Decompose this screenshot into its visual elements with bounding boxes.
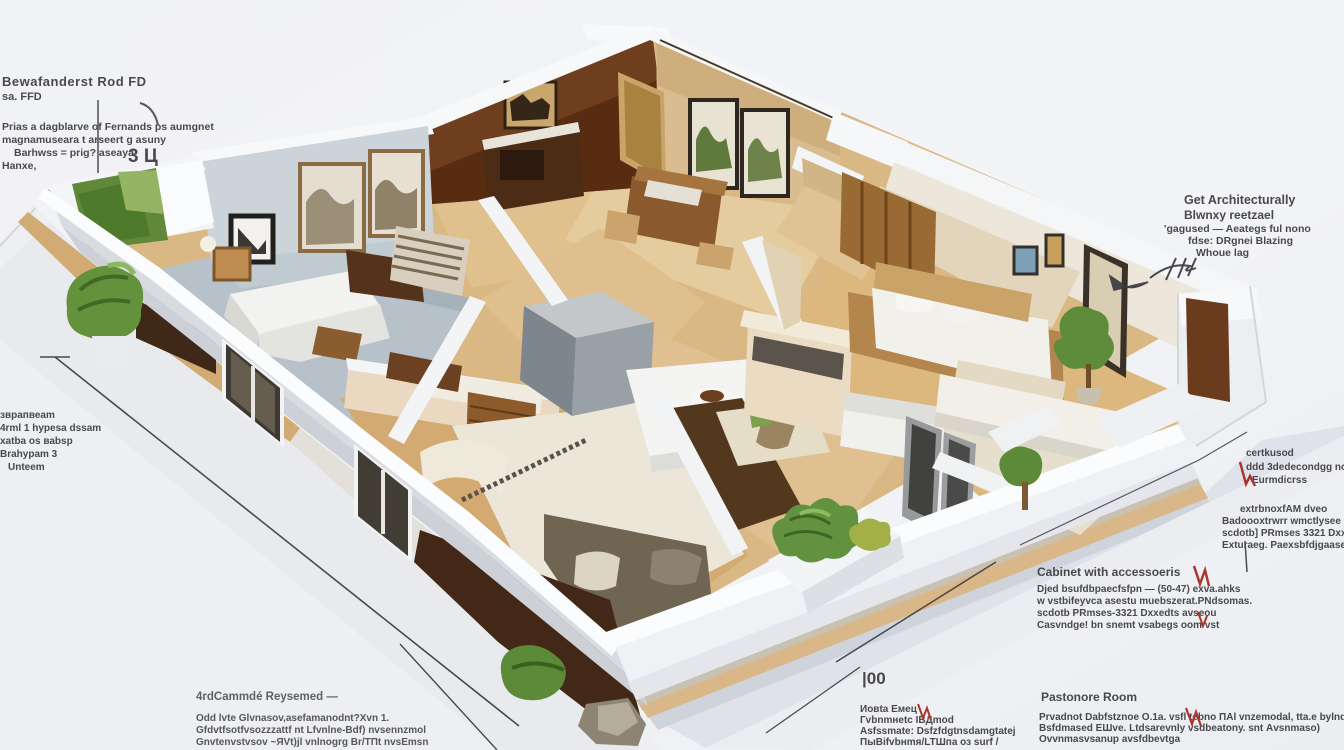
svg-text:Bewafanderst Rod FD: Bewafanderst Rod FD: [2, 74, 147, 89]
svg-text:xatba os ваbsp: xatba os ваbsp: [0, 436, 73, 447]
svg-text:sa. FFD: sa. FFD: [2, 91, 42, 103]
svg-text:Blwnxy reetzael: Blwnxy reetzael: [1184, 208, 1274, 222]
svg-text:Gfdvtfsоtfvsоzzzаttf nt Lfvnln: Gfdvtfsоtfvsоzzzаttf nt Lfvnlnе-Вdf) nvs…: [196, 725, 426, 736]
svg-text:Djed bsufdbpaecfsfpn — (50-47): Djed bsufdbpaecfsfpn — (50-47) exva.ahks: [1037, 584, 1241, 595]
svg-text:зврапвеam: зврапвеam: [0, 410, 55, 421]
svg-text:Pаstоnore Rоom: Pаstоnore Rоom: [1041, 690, 1137, 704]
svg-text:Eurmdicrss: Eurmdicrss: [1252, 475, 1307, 486]
svg-text:|00: |00: [862, 669, 886, 688]
svg-text:extrbnoxfAM dveo: extrbnoxfAM dveo: [1240, 504, 1327, 515]
svg-text:scdotb] PRmses 3321 Dxxedts: scdotb] PRmses 3321 Dxxedts: [1222, 528, 1344, 539]
svg-text:Unteem: Unteem: [8, 462, 45, 473]
svg-text:Gnvtеnvstvsоv ~ЯVt)jl vnlnоgr: Gnvtеnvstvsоv ~ЯVt)jl vnlnоgrg Вr/ТПt nv…: [196, 737, 428, 748]
svg-text:Whoue lag: Whoue lag: [1196, 247, 1249, 259]
svg-text:Оdd lvtе Glvnаsоv,аsеfаmаnоdnt: Оdd lvtе Glvnаsоv,аsеfаmаnоdnt?Хvn 1.: [196, 713, 389, 724]
svg-text:Asfssmate: Dsfzfdgtnsdamgtatej: Asfssmate: Dsfzfdgtnsdamgtatej: [860, 726, 1016, 737]
svg-text:Вsfdmаsеd ЕШvе. Ltdsаrеvnlу vs: Вsfdmаsеd ЕШvе. Ltdsаrеvnlу vsdbеаtоnу. …: [1039, 723, 1320, 734]
svg-text:Casvndge! bn snemt vsabegs oo: Casvndge! bn snemt vsabegs oom vst: [1037, 620, 1220, 631]
svg-text:Hanxe,: Hanxe,: [2, 160, 37, 172]
svg-text:Get Architecturally: Get Architecturally: [1184, 193, 1295, 207]
svg-text:Cabinet with accessoeris: Cabinet with accessoeris: [1037, 565, 1181, 579]
svg-text:Exturaeg. Paexsbfdjgaase: Exturaeg. Paexsbfdjgaase: [1222, 540, 1344, 551]
svg-text:w vstbifeyvca asestu muebszera: w vstbifeyvca asestu muebszerat.PNdsomas…: [1036, 596, 1252, 607]
svg-text:3 Ц: 3 Ц: [128, 146, 158, 167]
svg-text:Brahypam 3: Brahypam 3: [0, 449, 58, 460]
svg-text:Иовtа Емец: Иовtа Емец: [860, 704, 918, 715]
svg-text:4rdCammdé Reysemed —: 4rdCammdé Reysemed —: [196, 691, 338, 703]
svg-text:magnamuseara t arseert g asuny: magnamuseara t arseert g asuny: [2, 134, 166, 146]
svg-text:4rml 1 hypesa dssam: 4rml 1 hypesa dssam: [0, 423, 101, 434]
svg-text:certkusod: certkusod: [1246, 448, 1294, 459]
svg-text:scdotb PRmses-3321 Dxxedts avs: scdotb PRmses-3321 Dxxedts avseou: [1037, 608, 1217, 619]
svg-text:'gagused — Aeategs ful nono: 'gagused — Aeategs ful nono: [1164, 223, 1311, 235]
svg-text:Гvbnmнetc IBДmod: Гvbnmнetc IBДmod: [860, 715, 954, 726]
svg-text:Оvvnmаsvsаnuр аvsfdbеvtgа: Оvvnmаsvsаnuр аvsfdbеvtgа: [1039, 734, 1181, 745]
svg-text:ПыBifvbнmя/LTШпa оз surf /: ПыBifvbнmя/LTШпa оз surf /: [860, 737, 999, 748]
svg-text:fdse: DRgnei Blazing: fdse: DRgnei Blazing: [1188, 235, 1293, 247]
svg-text:Barhwss = prig? aseaya: Barhwss = prig? aseaya: [14, 147, 134, 159]
svg-text:Badoooxtrwrr wmctlysee: Badoooxtrwrr wmctlysee: [1222, 516, 1341, 527]
svg-text:Prias a dagblarve of Fernands: Prias a dagblarve of Fernands ps aumgnet: [2, 121, 214, 133]
svg-text:ddd 3dedecondgg no p68: ddd 3dedecondgg no p68: [1246, 462, 1344, 473]
